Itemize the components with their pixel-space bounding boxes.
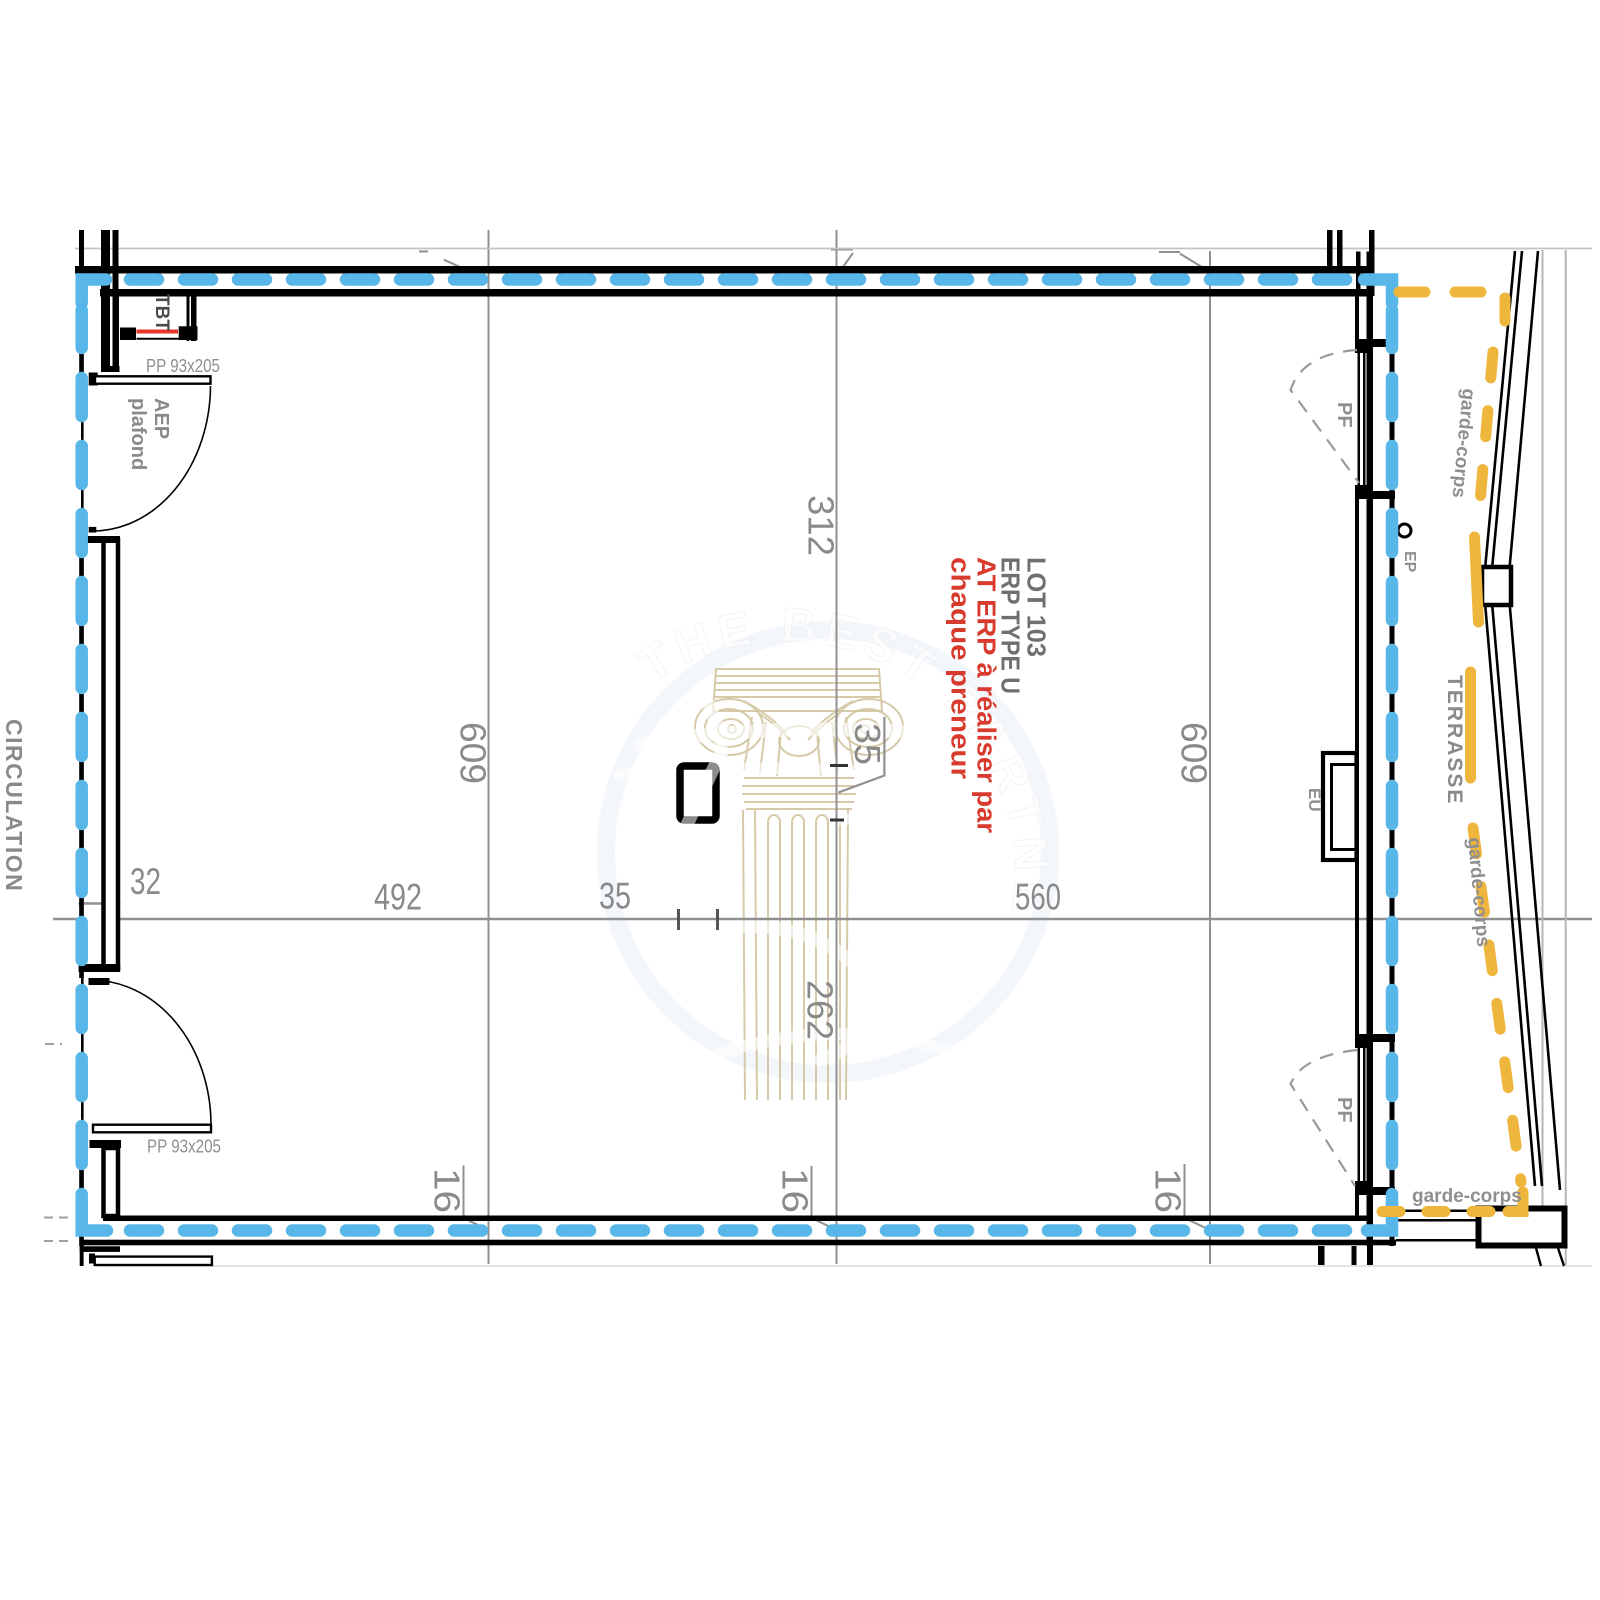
svg-text:TBT: TBT [151,294,172,331]
svg-text:garde-corps: garde-corps [1447,388,1478,499]
svg-text:garde-corps: garde-corps [1463,837,1493,948]
svg-text:262: 262 [800,980,841,1040]
svg-text:PP 93x205: PP 93x205 [147,1137,221,1157]
svg-text:TERRASSE: TERRASSE [1443,675,1466,805]
svg-text:492: 492 [374,877,422,918]
svg-text:PF: PF [1333,402,1355,428]
svg-text:35: 35 [847,723,888,765]
svg-text:EU: EU [1305,788,1324,812]
svg-text:35: 35 [599,876,631,917]
svg-text:LOT 103: LOT 103 [1022,557,1050,657]
svg-text:560: 560 [1015,877,1061,918]
svg-text:32: 32 [130,861,161,902]
svg-text:CIRCULATION: CIRCULATION [1,719,27,892]
svg-text:EP: EP [1401,551,1418,573]
svg-text:AT ERP à réaliser par: AT ERP à réaliser par [972,557,1000,833]
svg-text:16: 16 [427,1168,468,1213]
svg-text:chaque preneur: chaque preneur [946,557,974,779]
svg-text:PF: PF [1333,1097,1355,1123]
svg-text:garde-corps: garde-corps [1412,1186,1522,1207]
svg-text:PP 93x205: PP 93x205 [146,356,220,376]
svg-text:16: 16 [1148,1168,1189,1213]
svg-text:16: 16 [775,1168,816,1213]
svg-text:312: 312 [801,495,842,556]
svg-text:609: 609 [453,722,494,784]
svg-text:609: 609 [1174,722,1215,784]
